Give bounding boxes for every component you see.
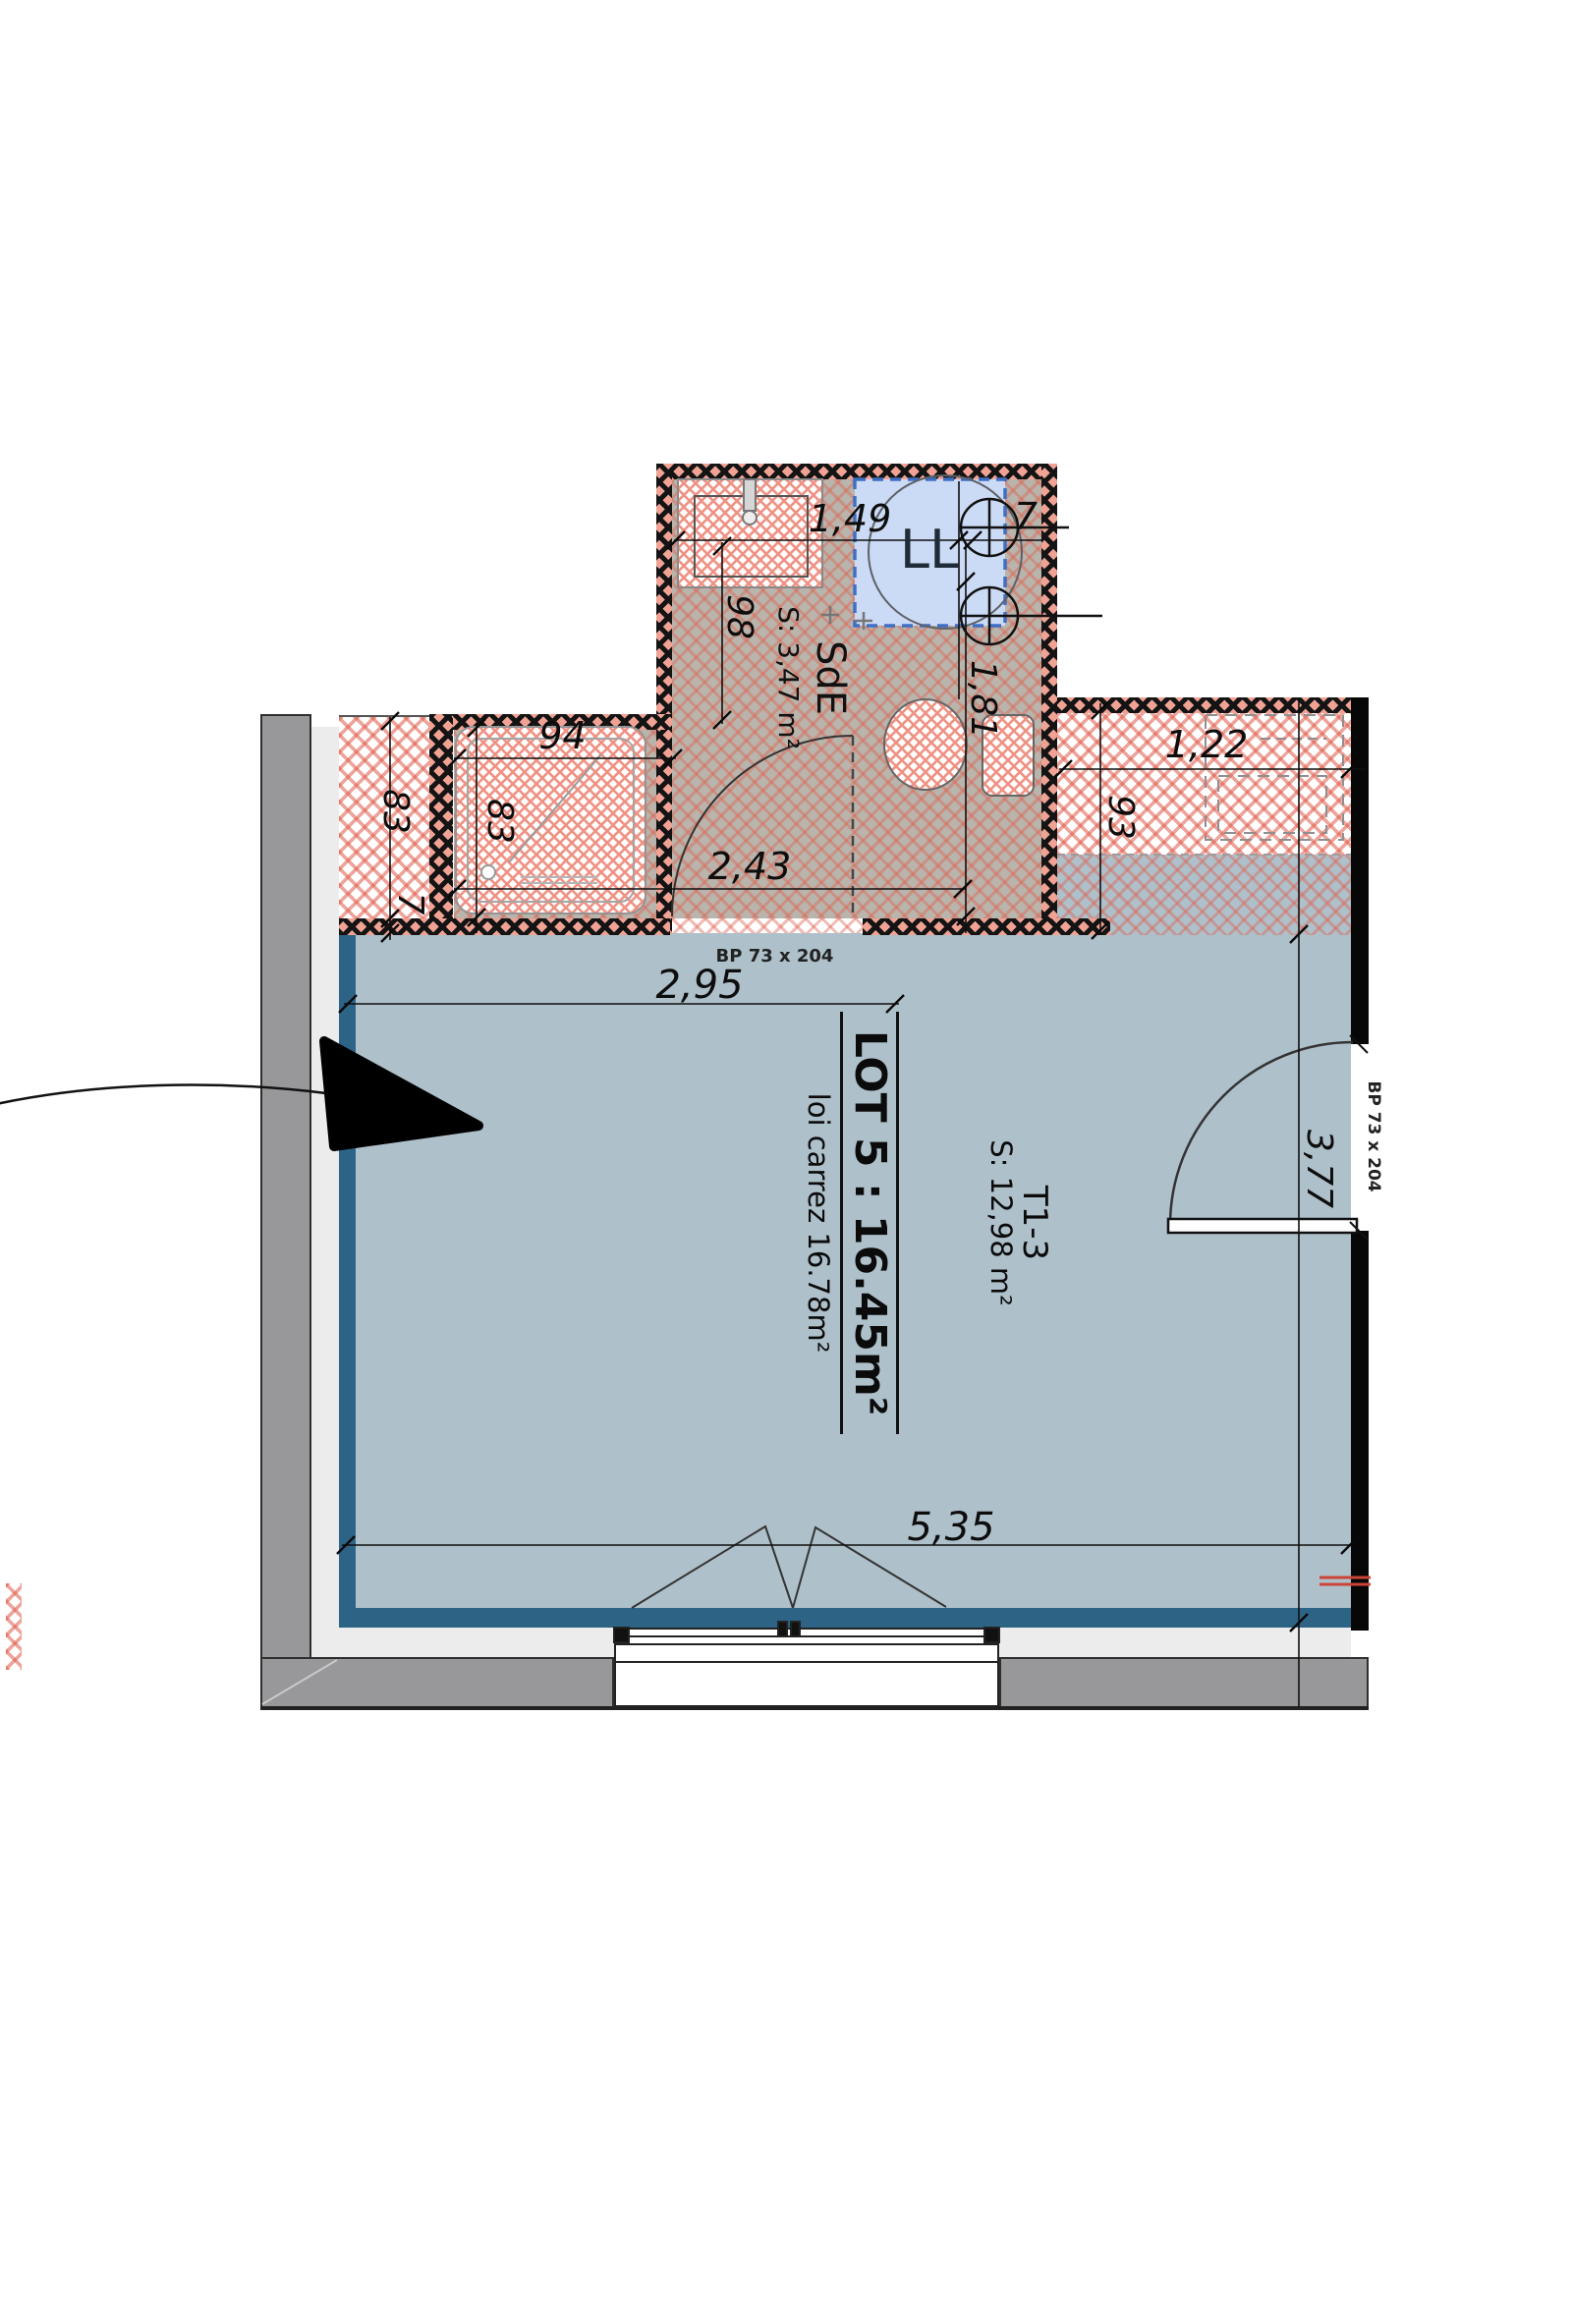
dim-sink-depth: 98 xyxy=(720,582,759,651)
window-frame xyxy=(614,1628,999,1707)
dim-kitchen-depth: 93 xyxy=(1101,783,1141,852)
dim-sink-offset: 7 xyxy=(1004,495,1047,538)
dim-bath-width: 2,43 xyxy=(691,845,809,888)
red-hatch-margin-strip xyxy=(6,1583,22,1670)
bathroom-label-block: SdE S: 3,47 m² xyxy=(762,555,853,801)
bathroom-name: SdE xyxy=(808,555,853,801)
unit-surface: S: 12,98 m² xyxy=(985,1012,1017,1434)
wall-kitchenette-top xyxy=(1057,697,1369,713)
dim-room-width-partial: 2,95 xyxy=(631,963,768,1008)
wall-bathroom-left xyxy=(656,464,672,934)
wall-lining-left xyxy=(311,727,339,1706)
dim-duct-height: 83 xyxy=(376,777,416,846)
exterior-wall-left xyxy=(260,714,311,1709)
dim-kitchen-width: 1,22 xyxy=(1148,723,1265,766)
wall-bottom-left xyxy=(339,918,670,935)
wall-duct-divider xyxy=(429,714,453,918)
wall-bathroom-top xyxy=(656,464,1057,479)
dim-shower-width: 94 xyxy=(521,714,604,757)
exterior-wall-bottom-left xyxy=(260,1657,614,1708)
dim-room-height: 3,77 xyxy=(1300,1115,1339,1223)
unit-type: T1-3 xyxy=(1017,1012,1052,1434)
wall-bottom-mid xyxy=(863,918,1110,935)
room-accent-left xyxy=(339,933,356,1628)
bathroom-surface: S: 3,47 m² xyxy=(768,555,808,801)
dim-duct-offset: 7 xyxy=(395,882,430,925)
entrance-door-label: BP 73 x 204 xyxy=(1362,1053,1383,1220)
loi-carrez: loi carrez 16.78m² xyxy=(803,1012,834,1434)
dim-bath-height: 1,81 xyxy=(964,655,1003,744)
dim-shower-height: 83 xyxy=(480,787,520,856)
exterior-wall-right-lower xyxy=(1351,1231,1369,1631)
washer-label: LL xyxy=(890,519,969,581)
floor-plan: 1,49 7 98 94 83 7 83 2,43 1,81 1,22 93 2… xyxy=(0,0,1572,2324)
room-accent-bottom xyxy=(339,1608,1351,1628)
dim-room-width: 5,35 xyxy=(882,1505,1020,1550)
bathroom-door-label: BP 73 x 204 xyxy=(694,946,856,967)
exterior-wall-bottom-right xyxy=(999,1657,1369,1708)
unit-label-block: T1-3 S: 12,98 m² LOT 5 : 16.45m² loi car… xyxy=(785,1012,1052,1434)
wall-lining-bottom-left xyxy=(339,1628,614,1657)
wall-lining-bottom-right xyxy=(999,1628,1351,1657)
lot-title: LOT 5 : 16.45m² xyxy=(840,1012,899,1434)
exterior-wall-right-upper xyxy=(1351,697,1369,1044)
